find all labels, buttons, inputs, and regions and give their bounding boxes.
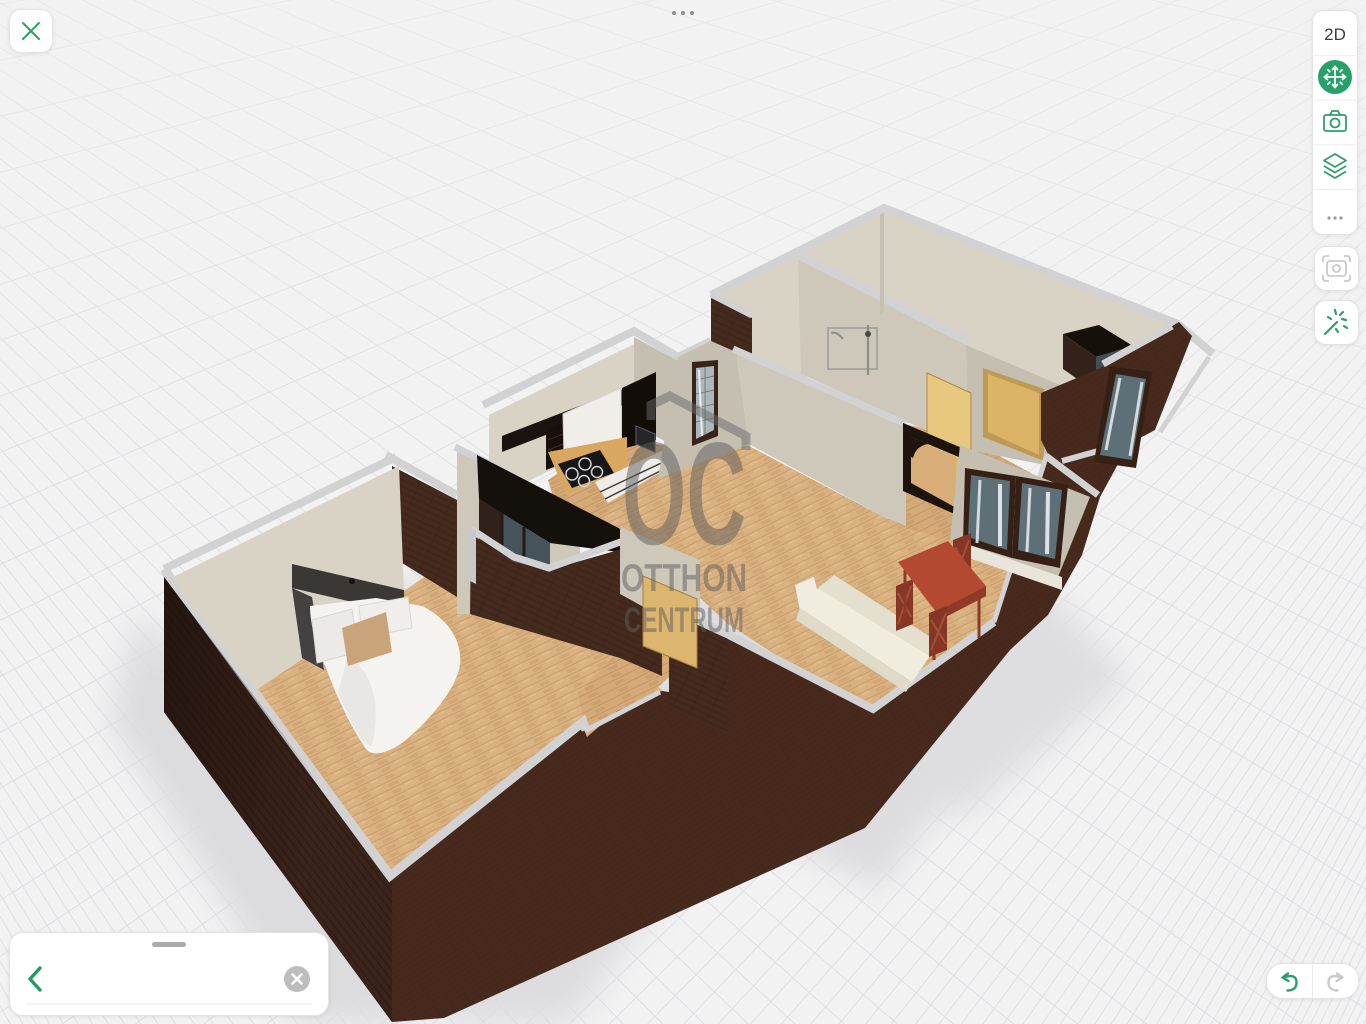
svg-text:OC: OC — [622, 412, 746, 575]
svg-text:OTTHON: OTTHON — [621, 557, 747, 600]
svg-text:CENTRUM: CENTRUM — [624, 601, 744, 640]
svg-text:2D: 2D — [1324, 25, 1346, 44]
